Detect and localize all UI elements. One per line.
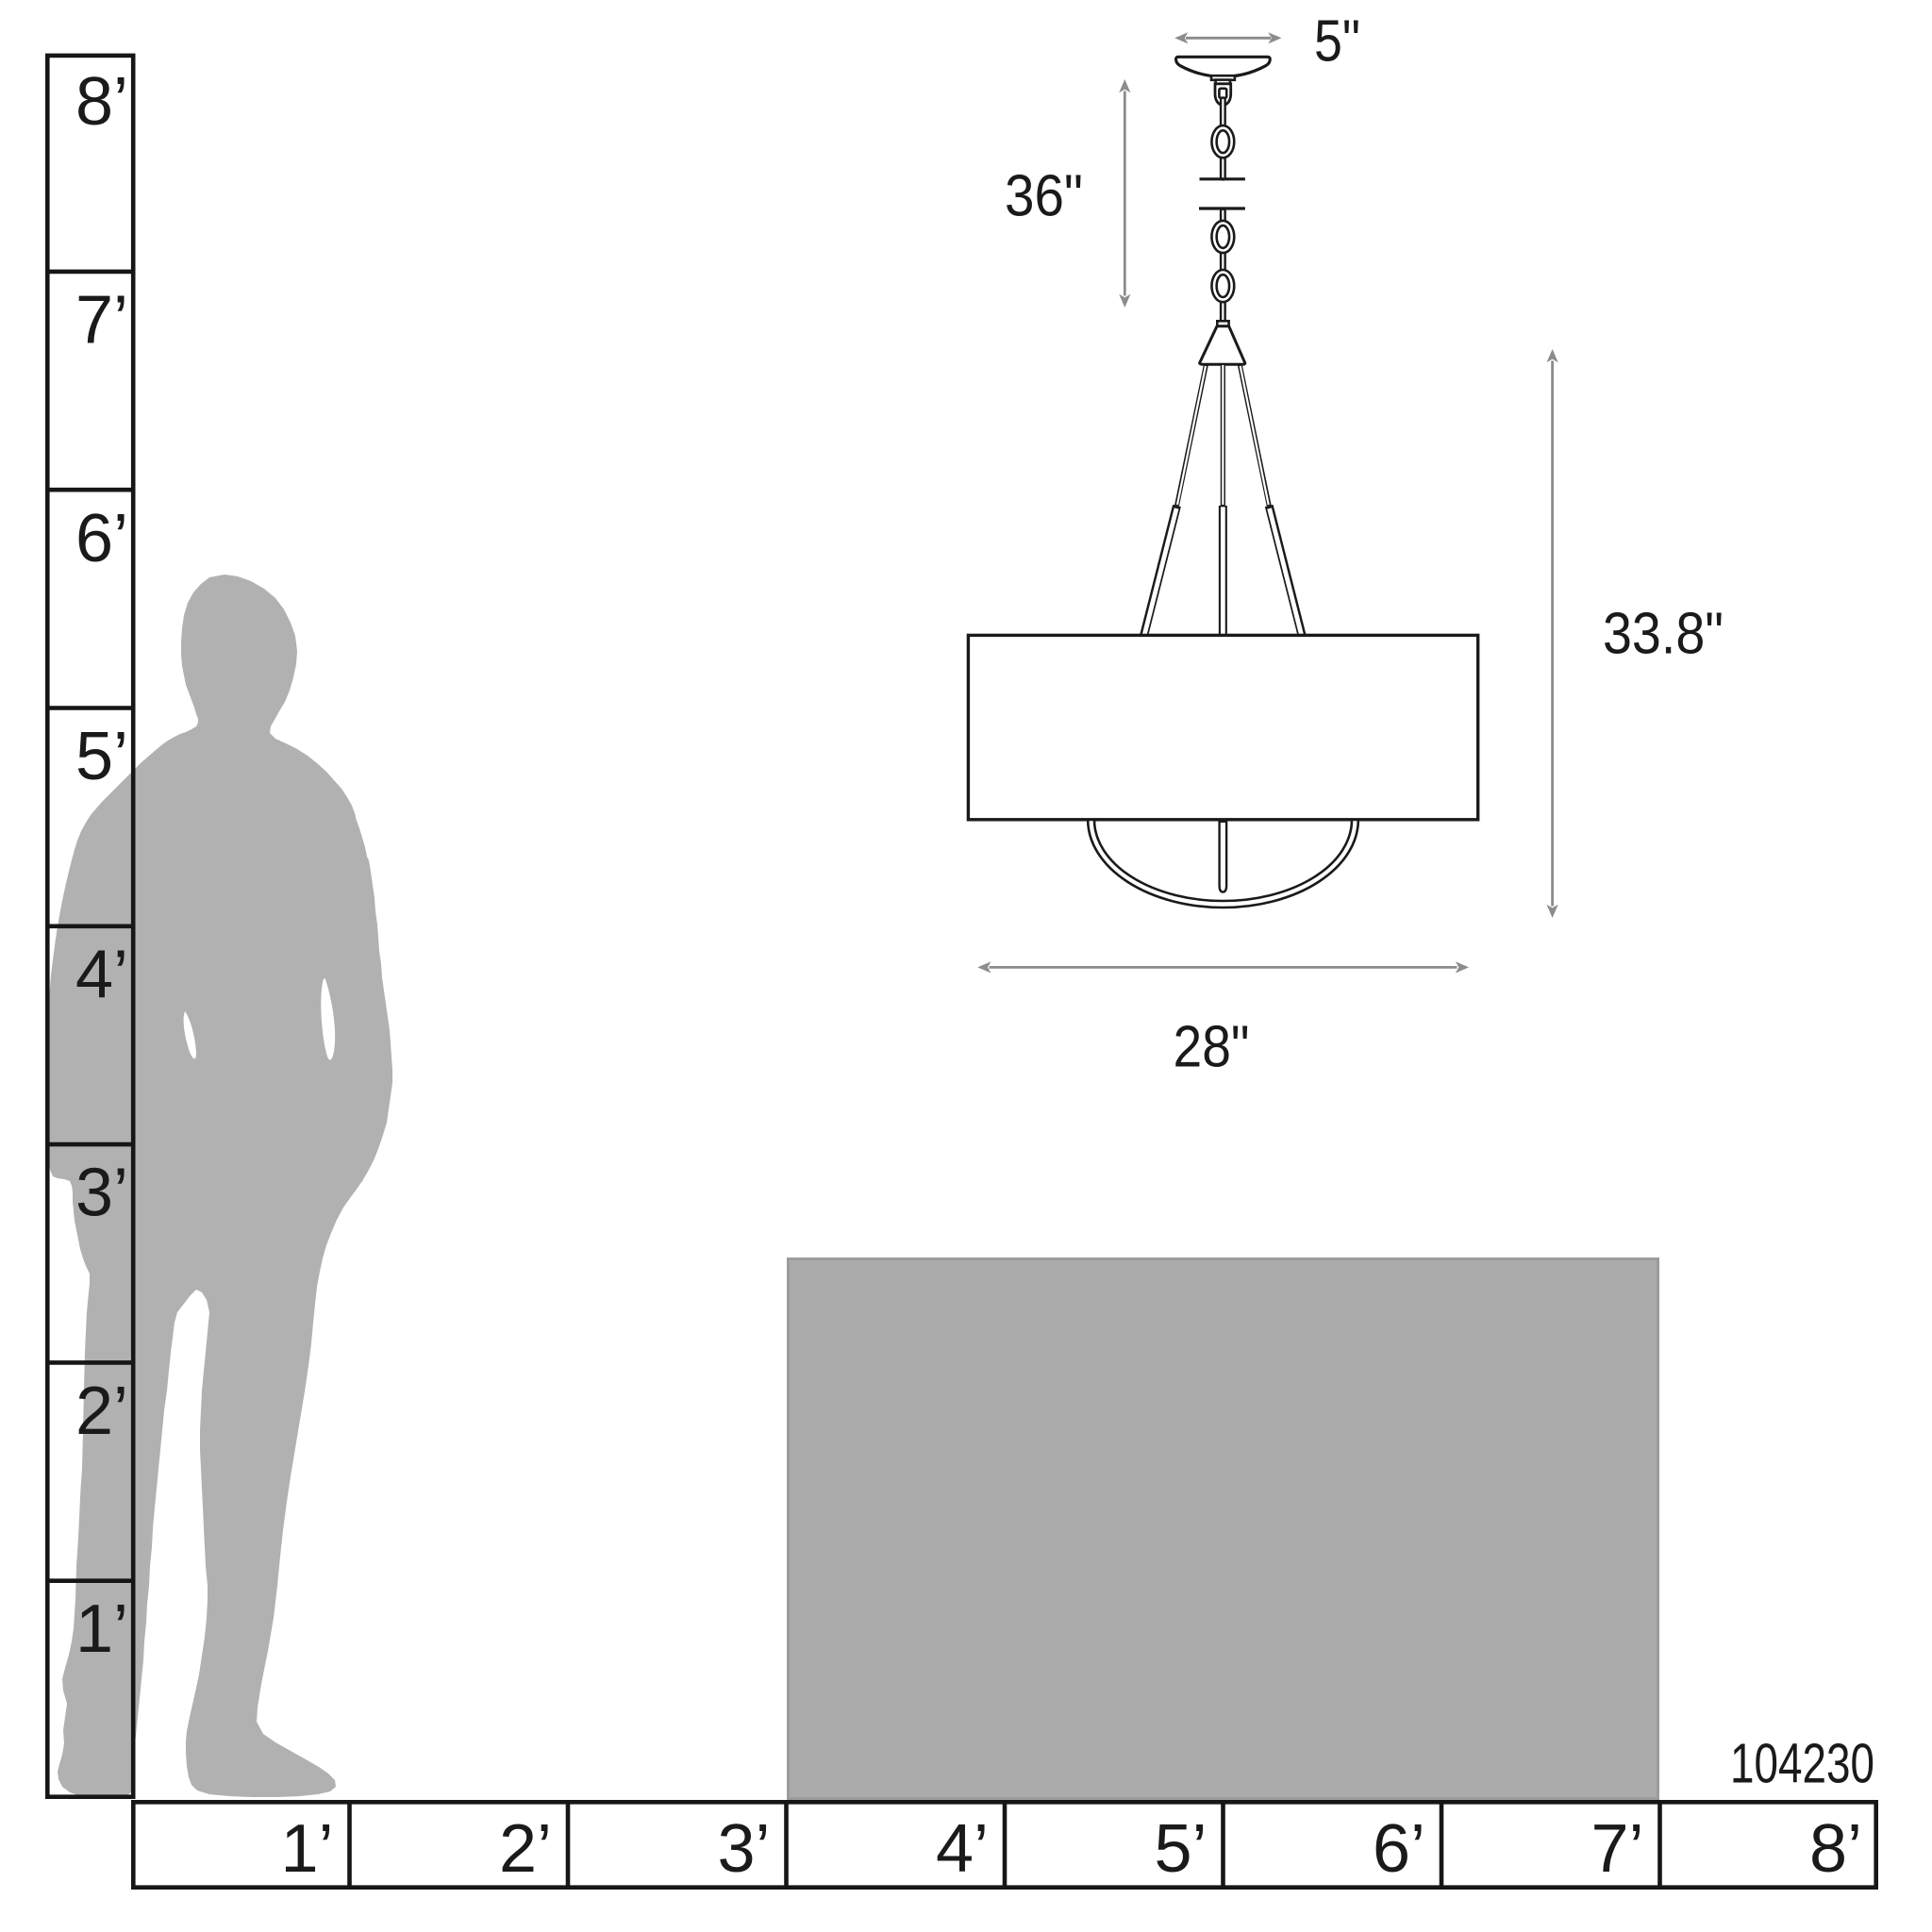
svg-text:6’: 6’ <box>75 501 128 576</box>
svg-text:33.8": 33.8" <box>1603 602 1724 667</box>
svg-text:7’: 7’ <box>75 283 128 358</box>
svg-text:1’: 1’ <box>280 1811 333 1887</box>
svg-text:8’: 8’ <box>1809 1811 1862 1887</box>
svg-text:3’: 3’ <box>75 1156 128 1231</box>
svg-text:3’: 3’ <box>717 1811 770 1887</box>
svg-text:2’: 2’ <box>75 1374 128 1449</box>
svg-text:6’: 6’ <box>1373 1811 1425 1887</box>
svg-text:7’: 7’ <box>1591 1811 1643 1887</box>
svg-text:28": 28" <box>1174 1015 1250 1080</box>
svg-text:8’: 8’ <box>75 64 128 140</box>
svg-text:5": 5" <box>1314 9 1360 75</box>
svg-text:4’: 4’ <box>936 1811 989 1887</box>
svg-text:104230: 104230 <box>1730 1733 1874 1795</box>
svg-text:5’: 5’ <box>75 719 128 794</box>
svg-text:1’: 1’ <box>75 1591 128 1667</box>
svg-text:36": 36" <box>1005 164 1083 229</box>
svg-text:2’: 2’ <box>499 1811 552 1887</box>
svg-text:4’: 4’ <box>75 937 128 1012</box>
svg-text:5’: 5’ <box>1154 1811 1207 1887</box>
